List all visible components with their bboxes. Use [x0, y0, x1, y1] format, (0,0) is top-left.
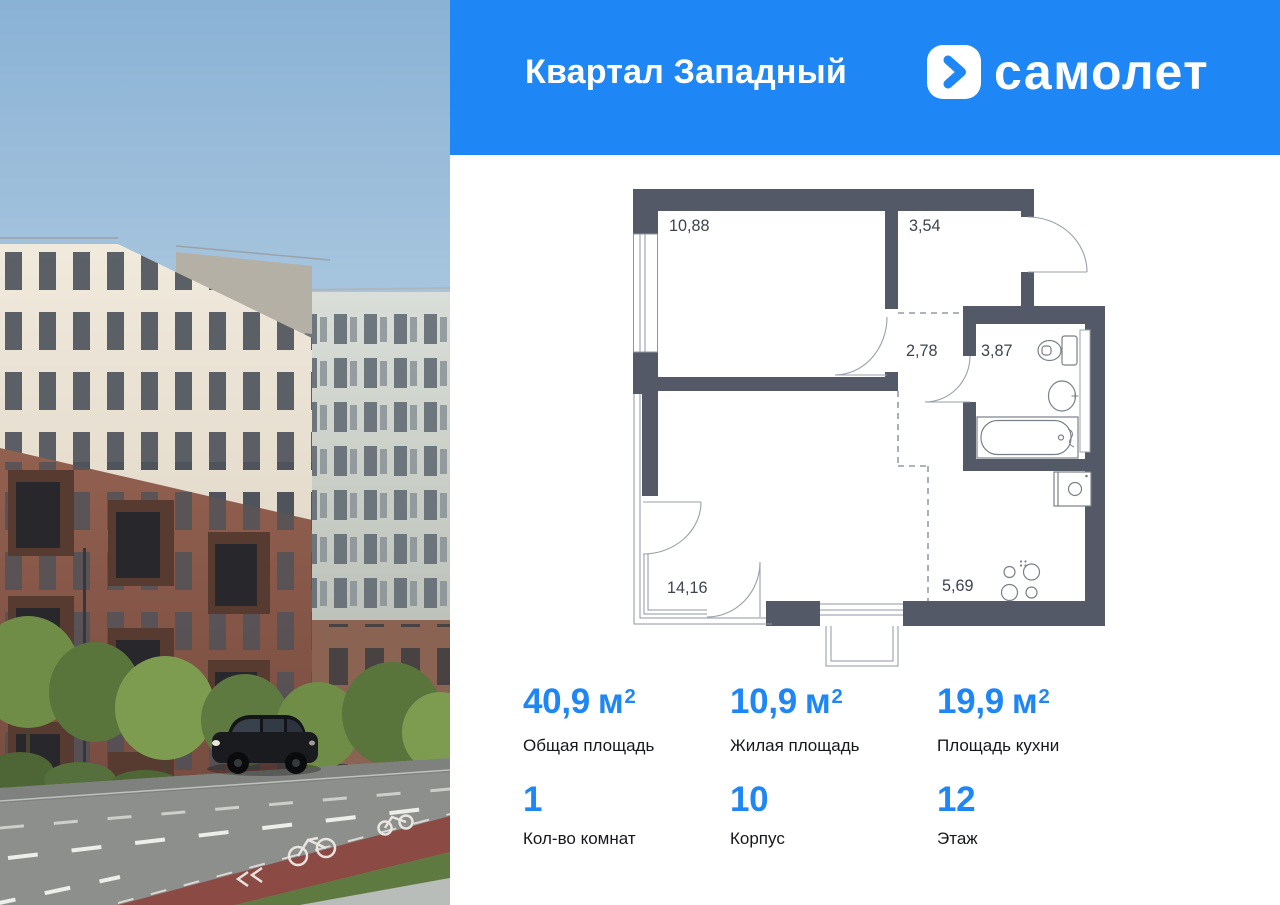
- stat-rooms-value: 1: [523, 782, 730, 818]
- stat-building-value: 10: [730, 782, 937, 818]
- room-area-kitchen: 5,69: [942, 577, 974, 595]
- stat-total-area-value: 40,9м2: [523, 684, 730, 725]
- duct-shaft: [1080, 330, 1090, 452]
- stat-living-area: 10,9м2 Жилая площадь: [730, 684, 937, 755]
- stat-total-area-label: Общая площадь: [523, 736, 730, 755]
- stat-kitchen-area-value: 19,9м2: [937, 684, 1144, 725]
- plan-walls: [633, 189, 1105, 626]
- brand-logo: самолет: [927, 45, 1209, 99]
- room-area-living: 14,16: [667, 579, 708, 597]
- stat-rooms-label: Кол-во комнат: [523, 829, 730, 848]
- stat-floor-label: Этаж: [937, 829, 1144, 848]
- stat-total-area: 40,9м2 Общая площадь: [523, 684, 730, 755]
- stat-kitchen-area-label: Площадь кухни: [937, 736, 1144, 755]
- card-header: Квартал Западный самолет: [450, 0, 1280, 155]
- project-photo-art: [0, 0, 450, 905]
- room-area-hallway: 3,54: [909, 217, 941, 235]
- samolet-logo-icon: [927, 45, 981, 99]
- room-area-corridor: 2,78: [906, 342, 938, 360]
- room-area-bedroom: 10,88: [669, 217, 710, 235]
- stat-living-area-label: Жилая площадь: [730, 736, 937, 755]
- room-area-bathroom: 3,87: [981, 342, 1013, 360]
- stat-building-label: Корпус: [730, 829, 937, 848]
- stat-living-area-value: 10,9м2: [730, 684, 937, 725]
- bedroom-window: [634, 234, 658, 352]
- brand-name: самолет: [994, 45, 1209, 99]
- project-photo: [0, 0, 450, 905]
- washer-icon: [1054, 472, 1091, 506]
- stove-icon: [1002, 560, 1040, 600]
- floor-plan: 10,88 3,54 2,78 3,87 14,16 5,69: [625, 184, 1107, 670]
- card-content: Квартал Западный самолет: [450, 0, 1280, 905]
- project-title: Квартал Западный: [525, 52, 847, 92]
- stat-building: 10 Корпус: [730, 782, 937, 848]
- listing-card: Квартал Западный самолет: [0, 0, 1280, 905]
- stat-kitchen-area: 19,9м2 Площадь кухни: [937, 684, 1144, 755]
- stat-rooms: 1 Кол-во комнат: [523, 782, 730, 848]
- stat-floor-value: 12: [937, 782, 1144, 818]
- balcony: [820, 604, 903, 666]
- stat-floor: 12 Этаж: [937, 782, 1144, 848]
